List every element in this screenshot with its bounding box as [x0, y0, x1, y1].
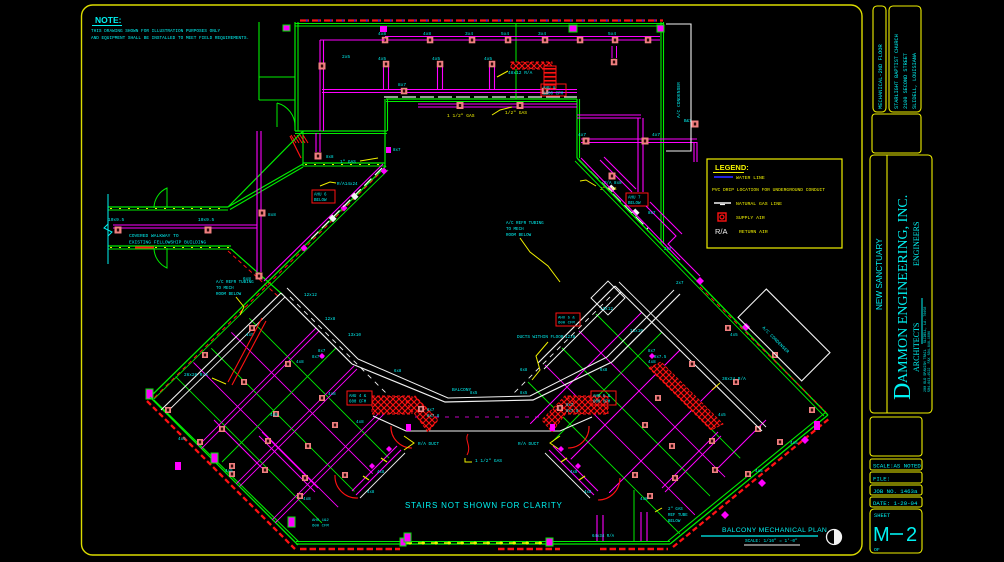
- svg-text:2x7: 2x7: [676, 282, 684, 286]
- svg-text:8x7.5: 8x7.5: [566, 410, 579, 414]
- svg-text:8x7: 8x7: [648, 212, 656, 216]
- svg-text:8x7: 8x7: [398, 82, 406, 88]
- svg-text:MECHANICAL-2ND FLOOR: MECHANICAL-2ND FLOOR: [878, 44, 884, 109]
- svg-text:8x7: 8x7: [393, 149, 401, 153]
- svg-text:600 CFM: 600 CFM: [593, 401, 611, 405]
- svg-text:THIS DRAWING SHOWN FOR ILLUSTR: THIS DRAWING SHOWN FOR ILLUSTRATION PURP…: [91, 29, 220, 34]
- svg-text:600 CFM: 600 CFM: [349, 401, 367, 405]
- svg-text:2" GAS: 2" GAS: [668, 507, 683, 512]
- svg-text:3x4: 3x4: [538, 31, 546, 37]
- svg-text:1 1/2" GAS: 1 1/2" GAS: [447, 113, 475, 119]
- svg-text:AMMON ENGINEERING, INC.: AMMON ENGINEERING, INC.: [896, 195, 911, 383]
- svg-text:4x8: 4x8: [303, 497, 311, 502]
- svg-text:DATE: 1-20-04: DATE: 1-20-04: [873, 500, 918, 507]
- svg-text:AHU 7: AHU 7: [628, 197, 641, 201]
- svg-text:64x34 R/A: 64x34 R/A: [592, 534, 615, 539]
- svg-text:8x7: 8x7: [566, 404, 574, 408]
- svg-text:AHU 5 &: AHU 5 &: [558, 317, 575, 321]
- svg-text:AHU 4 &: AHU 4 &: [349, 395, 367, 399]
- svg-text:2100 SECOND STREET: 2100 SECOND STREET: [903, 53, 909, 109]
- svg-text:4x5: 4x5: [225, 469, 233, 474]
- svg-text:10x9.5: 10x9.5: [108, 217, 125, 223]
- svg-text:4x5: 4x5: [730, 333, 738, 338]
- svg-text:8x5: 8x5: [520, 392, 528, 396]
- svg-text:ARCHITECTS: ARCHITECTS: [912, 323, 921, 372]
- svg-text:8x8: 8x8: [268, 213, 276, 218]
- svg-text:6x8: 6x8: [520, 369, 528, 373]
- svg-text:4x5: 4x5: [378, 56, 386, 62]
- svg-text:8x7.5: 8x7.5: [654, 356, 667, 360]
- svg-text:4x5: 4x5: [755, 469, 763, 474]
- svg-text:BELOW: BELOW: [314, 199, 327, 203]
- svg-text:R/A: R/A: [715, 227, 728, 236]
- svg-text:6x8: 6x8: [394, 370, 402, 374]
- svg-text:12x12: 12x12: [304, 293, 317, 298]
- svg-text:1200 CFM: 1200 CFM: [543, 93, 564, 97]
- svg-text:4x7: 4x7: [578, 132, 586, 138]
- svg-text:AND EQUIPMENT SHALL BE INSTALL: AND EQUIPMENT SHALL BE INSTALLED TO MEET…: [91, 36, 249, 41]
- svg-text:8x8: 8x8: [326, 156, 334, 160]
- svg-text:600 CFM: 600 CFM: [312, 525, 329, 529]
- svg-text:A/C CONDENSER: A/C CONDENSER: [676, 82, 682, 118]
- svg-text:BALCONY MECHANICAL PLAN: BALCONY MECHANICAL PLAN: [722, 527, 827, 534]
- svg-text:ROOM BELOW: ROOM BELOW: [506, 234, 532, 238]
- svg-text:4x8: 4x8: [367, 491, 375, 495]
- svg-text:OF: OF: [874, 547, 880, 553]
- svg-text:NEW SANCTUARY: NEW SANCTUARY: [875, 238, 884, 310]
- svg-text:8x7: 8x7: [427, 409, 435, 413]
- svg-text:BELOW: BELOW: [628, 202, 641, 206]
- svg-text:PVC DRIP LOCATION FOR UNDERGRO: PVC DRIP LOCATION FOR UNDERGROUND CONDUI…: [712, 187, 825, 193]
- svg-text:4x8: 4x8: [584, 491, 592, 495]
- svg-text:NOTE:: NOTE:: [95, 15, 122, 25]
- svg-text:JOB NO. 1463a: JOB NO. 1463a: [873, 488, 918, 495]
- svg-text:4x8: 4x8: [356, 420, 364, 425]
- svg-text:STARLIGHT BAPTIST CHURCH: STARLIGHT BAPTIST CHURCH: [894, 34, 900, 109]
- svg-text:NATURAL GAS LINE: NATURAL GAS LINE: [736, 201, 782, 207]
- svg-text:12x8: 12x8: [325, 317, 336, 322]
- svg-text:4x5: 4x5: [718, 413, 726, 418]
- svg-text:8x7.8: 8x7.8: [427, 415, 440, 419]
- svg-text:TO MECH: TO MECH: [216, 287, 234, 291]
- svg-text:26x26 R/A: 26x26 R/A: [184, 373, 208, 378]
- svg-text:1" GAS: 1" GAS: [340, 160, 356, 165]
- svg-text:AHU 6: AHU 6: [314, 194, 327, 198]
- svg-text:12x8: 12x8: [565, 335, 576, 340]
- svg-text:ENGINEERS: ENGINEERS: [912, 222, 921, 266]
- svg-text:8x5: 8x5: [470, 392, 478, 396]
- svg-text:SCALE: 1/16" = 1'-0": SCALE: 1/16" = 1'-0": [745, 539, 798, 544]
- svg-text:13x10: 13x10: [348, 333, 361, 338]
- svg-text:AHU 1&2: AHU 1&2: [312, 519, 329, 523]
- svg-text:A/C REFR TUBING: A/C REFR TUBING: [506, 221, 544, 226]
- svg-text:TO MECH: TO MECH: [506, 228, 524, 232]
- svg-text:RETURN AIR: RETURN AIR: [739, 229, 768, 235]
- svg-text:6x8: 6x8: [600, 369, 608, 373]
- svg-text:4x5: 4x5: [432, 56, 440, 62]
- svg-text:4x5: 4x5: [484, 56, 492, 62]
- svg-text:ROOM BELOW: ROOM BELOW: [216, 293, 242, 297]
- svg-text:EXISTING FELLOWSHIP BUILDING: EXISTING FELLOWSHIP BUILDING: [129, 240, 206, 246]
- svg-text:SCALE:AS NOTED: SCALE:AS NOTED: [873, 463, 921, 470]
- svg-text:2x5: 2x5: [342, 54, 350, 60]
- svg-text:4x7: 4x7: [652, 132, 660, 138]
- svg-text:4x8: 4x8: [328, 392, 336, 397]
- svg-text:LEGEND:: LEGEND:: [715, 163, 749, 172]
- svg-text:R/A14x24: R/A14x24: [337, 182, 358, 187]
- svg-text:FILE:: FILE:: [873, 476, 890, 483]
- svg-text:4x8: 4x8: [640, 497, 648, 502]
- svg-text:5x4: 5x4: [608, 31, 616, 37]
- svg-text:COVERED WALKWAY TO: COVERED WALKWAY TO: [129, 233, 179, 239]
- svg-text:SHEET: SHEET: [874, 513, 891, 519]
- svg-text:5x4: 5x4: [501, 31, 509, 37]
- svg-text:REF TUBE: REF TUBE: [668, 514, 688, 518]
- svg-text:BELOW: BELOW: [668, 520, 681, 524]
- svg-text:2: 2: [906, 524, 917, 546]
- svg-text:1/2" GAS: 1/2" GAS: [505, 110, 527, 116]
- svg-text:D: D: [890, 383, 916, 400]
- svg-text:4x8: 4x8: [570, 471, 578, 475]
- svg-text:DUCTS WITHIN FLOOR: DUCTS WITHIN FLOOR: [517, 335, 564, 340]
- svg-text:48x12 R/A: 48x12 R/A: [508, 70, 533, 76]
- svg-text:SUPPLY AIR: SUPPLY AIR: [736, 215, 765, 221]
- svg-text:36x24 R/A: 36x24 R/A: [722, 377, 746, 382]
- svg-text:4x5: 4x5: [790, 441, 798, 446]
- svg-text:M: M: [873, 524, 890, 546]
- svg-text:WATER LINE: WATER LINE: [736, 175, 765, 181]
- svg-text:10x9.5: 10x9.5: [198, 217, 215, 223]
- svg-text:4x8: 4x8: [648, 360, 656, 365]
- svg-text:6x8: 6x8: [243, 277, 251, 282]
- svg-text:3x4: 3x4: [465, 31, 473, 37]
- svg-text:R/A DUCT: R/A DUCT: [418, 442, 439, 447]
- svg-text:4x8: 4x8: [377, 471, 385, 475]
- svg-text:4x5: 4x5: [270, 413, 278, 418]
- svg-text:4x8: 4x8: [423, 31, 431, 37]
- svg-text:SLIDELL, LOUISIANA: SLIDELL, LOUISIANA: [912, 52, 918, 109]
- svg-text:R/A DUCT: R/A DUCT: [518, 442, 539, 447]
- svg-text:4x5: 4x5: [178, 437, 186, 442]
- svg-text:BALCONY: BALCONY: [452, 387, 472, 393]
- svg-text:1 1/2" GAS: 1 1/2" GAS: [475, 458, 502, 464]
- svg-text:AHU 5 &: AHU 5 &: [593, 395, 611, 399]
- svg-text:STAIRS NOT SHOWN FOR CLARITY: STAIRS NOT SHOWN FOR CLARITY: [405, 501, 563, 510]
- svg-text:4x8: 4x8: [296, 360, 304, 365]
- svg-text:504-643-4522 FAX 504-646-1806: 504-643-4522 FAX 504-646-1806: [928, 331, 932, 392]
- svg-text:AHU 8: AHU 8: [543, 87, 556, 91]
- svg-text:600 CFM: 600 CFM: [558, 322, 575, 326]
